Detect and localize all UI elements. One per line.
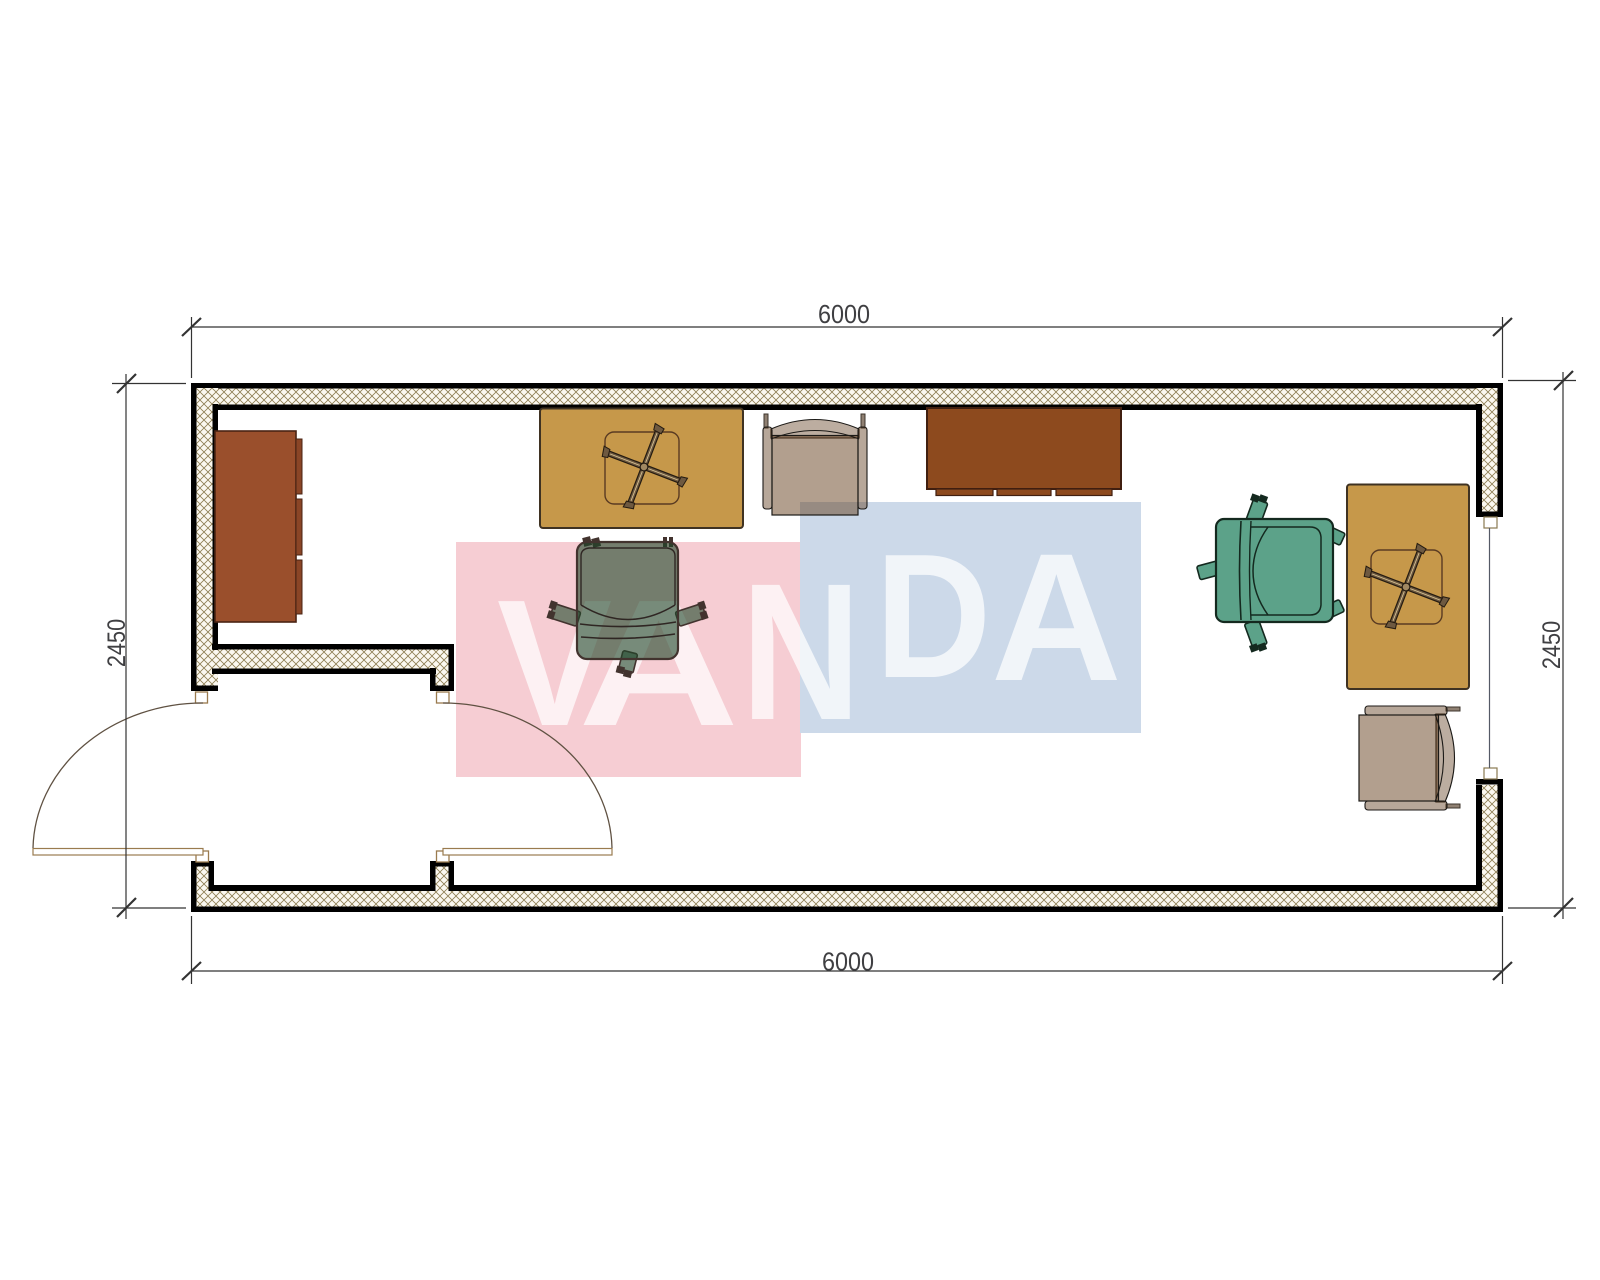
svg-text:2450: 2450 xyxy=(103,619,131,667)
svg-text:D: D xyxy=(875,517,991,715)
svg-text:N: N xyxy=(741,544,861,761)
svg-text:2450: 2450 xyxy=(1538,621,1566,669)
svg-text:6000: 6000 xyxy=(822,948,874,976)
svg-text:6000: 6000 xyxy=(818,301,870,329)
svg-text:A: A xyxy=(991,517,1122,720)
